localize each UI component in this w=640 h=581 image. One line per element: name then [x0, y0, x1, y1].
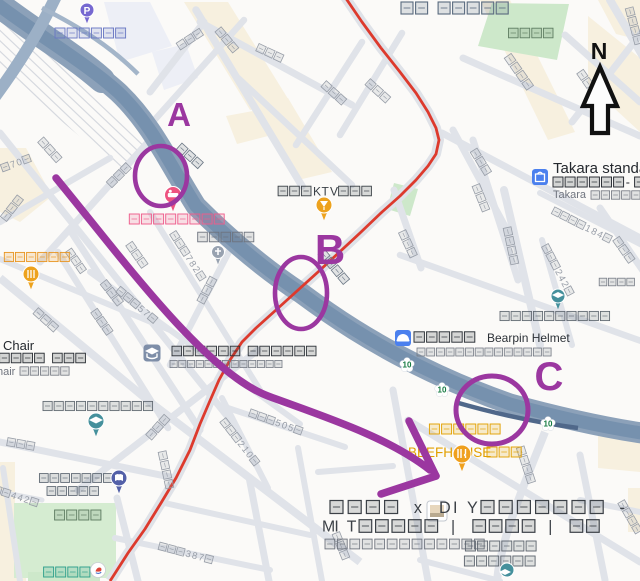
svg-text:N: N — [591, 38, 608, 64]
svg-text:Chair: Chair — [3, 338, 35, 353]
svg-text:10: 10 — [403, 361, 412, 370]
svg-text:V: V — [330, 184, 338, 198]
svg-text:B: B — [315, 226, 345, 273]
svg-text:I: I — [334, 519, 338, 536]
svg-text:Takara: Takara — [553, 189, 587, 201]
svg-text:-: - — [626, 176, 630, 190]
svg-text:P: P — [84, 6, 91, 17]
svg-text:|: | — [548, 519, 552, 536]
svg-text:-: - — [620, 499, 625, 517]
svg-text:Y: Y — [467, 499, 478, 517]
svg-text:T: T — [322, 184, 330, 198]
svg-text:D: D — [439, 499, 451, 517]
svg-text:10: 10 — [544, 420, 553, 429]
svg-text:10: 10 — [438, 386, 447, 395]
svg-text:|: | — [451, 519, 455, 536]
svg-text:Bearpin Helmet: Bearpin Helmet — [487, 331, 570, 345]
svg-text:C: C — [535, 355, 564, 399]
svg-text:hair: hair — [0, 366, 16, 378]
svg-text:M: M — [322, 519, 335, 536]
svg-text:Takara standard: Takara standard — [553, 160, 640, 177]
svg-text:I: I — [453, 499, 458, 517]
svg-text:A: A — [167, 96, 191, 133]
svg-text:x: x — [414, 499, 422, 517]
svg-text:K: K — [313, 184, 321, 198]
svg-text:T: T — [347, 519, 357, 536]
